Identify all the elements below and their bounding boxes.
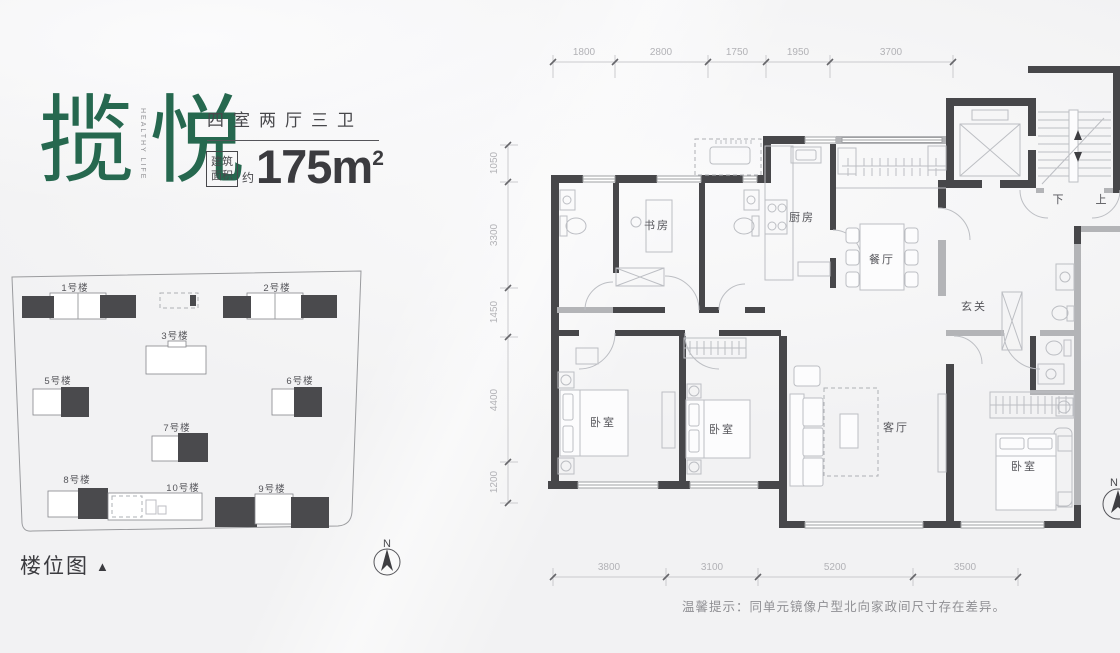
building-6: 6号楼 — [272, 375, 322, 417]
area-exponent: 2 — [372, 147, 383, 170]
building-3-label: 3号楼 — [161, 330, 188, 342]
layout-type-label: 四室两厅三卫 — [207, 106, 379, 141]
building-7: 7号楼 — [152, 422, 208, 462]
dim-top-5: 3700 — [880, 47, 903, 58]
dim-left-1: 1050 — [489, 151, 500, 174]
master-bedroom-label: 卧室 — [1011, 459, 1037, 473]
area-row: 建筑 面积 约 175m2 — [206, 143, 383, 190]
dimension-left: 1050 3300 1450 4400 1200 — [489, 142, 518, 506]
area-approx-label: 约 — [242, 169, 254, 186]
floor-plan: 1800 2800 1750 1950 3700 1050 3300 1450 … — [480, 40, 1120, 620]
building-2-label: 2号楼 — [263, 282, 290, 294]
dim-bottom-3: 5200 — [824, 562, 847, 573]
building-9-label: 9号楼 — [258, 483, 285, 495]
title-char-1: 揽 — [38, 92, 134, 193]
dim-top-4: 1950 — [787, 47, 810, 58]
dim-top-3: 1750 — [726, 47, 749, 58]
dim-left-3: 1450 — [489, 300, 500, 323]
building-7-label: 7号楼 — [163, 422, 190, 434]
disclaimer-note: 温馨提示：同单元镜像户型北向家政间尺寸存在差异。 — [682, 596, 1006, 615]
bedroom-2 — [684, 333, 750, 474]
dining-label: 餐厅 — [869, 252, 895, 266]
bedroom-2-label: 卧室 — [709, 422, 735, 436]
dining-room — [846, 208, 970, 290]
site-plan-caption: 楼位图▲ — [20, 550, 111, 580]
laundry-area — [836, 146, 946, 188]
dimension-top: 1800 2800 1750 1950 3700 — [550, 47, 956, 78]
building-5-label: 5号楼 — [44, 375, 71, 387]
north-balcony — [695, 139, 761, 175]
building-3: 3号楼 — [146, 330, 206, 374]
elevator — [960, 110, 1020, 176]
bathroom-2 — [719, 190, 759, 310]
building-10: 10号楼 — [108, 482, 202, 520]
building-8: 8号楼 — [48, 474, 108, 519]
building-5: 5号楼 — [33, 375, 89, 417]
dim-top-1: 1800 — [573, 47, 596, 58]
dim-bottom-4: 3500 — [954, 562, 977, 573]
plan-north-label: N — [1110, 477, 1118, 489]
study-room — [616, 200, 699, 310]
triangle-marker-icon: ▲ — [96, 559, 111, 574]
bedroom-1-label: 卧室 — [590, 415, 616, 429]
area-value: 175m2 — [256, 143, 383, 190]
area-box-label: 建筑 面积 — [206, 151, 238, 187]
site-north-compass: N — [374, 538, 400, 575]
stair-down-label: 下 — [1053, 194, 1066, 206]
kitchen-label: 厨房 — [789, 211, 815, 224]
dim-bottom-1: 3800 — [598, 562, 621, 573]
study-label: 书房 — [644, 219, 670, 232]
area-box-line1: 建筑 — [211, 155, 233, 169]
building-1: 1号楼 — [22, 282, 136, 319]
master-bedroom — [990, 392, 1074, 510]
site-plan-caption-text: 楼位图 — [20, 555, 89, 578]
dimension-bottom: 3800 3100 5200 3500 — [550, 562, 1021, 586]
living-label: 客厅 — [883, 420, 909, 434]
area-box-line2: 面积 — [211, 169, 233, 183]
foyer — [1002, 264, 1074, 369]
dim-top-2: 2800 — [650, 47, 673, 58]
foyer-label: 玄关 — [961, 299, 987, 313]
dim-left-5: 1200 — [489, 470, 500, 493]
building-6-label: 6号楼 — [286, 375, 313, 387]
building-10-label: 10号楼 — [166, 482, 200, 494]
site-north-label: N — [383, 538, 391, 550]
bathroom-1 — [560, 190, 613, 310]
plan-north-compass: N — [1103, 477, 1120, 519]
dim-left-4: 4400 — [489, 388, 500, 411]
site-plan: 1号楼 2号楼 3号楼 5号楼 6号楼 7号楼 8号楼 — [0, 260, 430, 590]
site-dashed-lot — [160, 293, 198, 308]
dim-bottom-2: 3100 — [701, 562, 724, 573]
stair-up-label: 上 — [1096, 193, 1109, 206]
title-english-subtitle: HEALTHY LIFE — [139, 108, 146, 188]
bedroom-1 — [558, 333, 675, 474]
building-8-label: 8号楼 — [63, 474, 90, 486]
dim-left-2: 3300 — [489, 223, 500, 246]
building-9: 9号楼 — [215, 483, 329, 528]
building-1-label: 1号楼 — [61, 282, 88, 294]
building-2: 2号楼 — [223, 282, 337, 319]
